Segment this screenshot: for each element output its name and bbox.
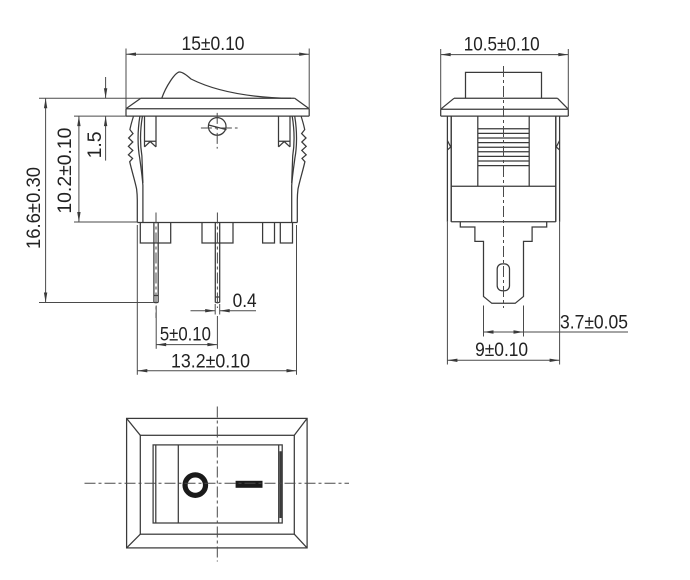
svg-text:5±0.10: 5±0.10: [160, 325, 211, 346]
svg-text:1.5: 1.5: [85, 131, 106, 158]
svg-text:9±0.10: 9±0.10: [475, 340, 528, 361]
svg-text:0.4: 0.4: [233, 291, 257, 312]
svg-text:10.2±0.10: 10.2±0.10: [55, 128, 76, 214]
svg-text:15±0.10: 15±0.10: [182, 34, 245, 55]
svg-text:13.2±0.10: 13.2±0.10: [171, 352, 250, 373]
svg-text:10.5±0.10: 10.5±0.10: [464, 34, 540, 55]
svg-text:16.6±0.30: 16.6±0.30: [24, 167, 45, 249]
svg-text:3.7±0.05: 3.7±0.05: [560, 313, 628, 334]
